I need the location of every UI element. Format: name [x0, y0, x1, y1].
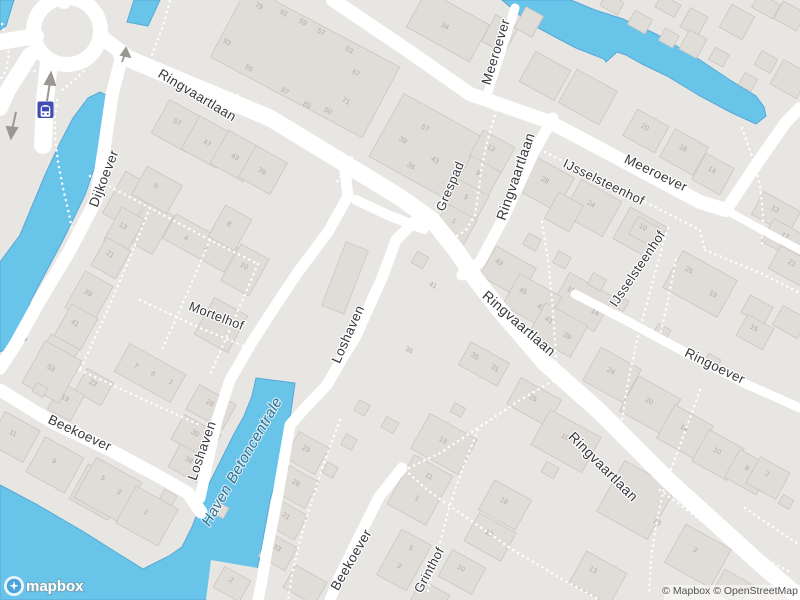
svg-text:© Mapbox © OpenStreetMap: © Mapbox © OpenStreetMap [662, 585, 798, 597]
svg-text:mapbox: mapbox [26, 578, 84, 595]
